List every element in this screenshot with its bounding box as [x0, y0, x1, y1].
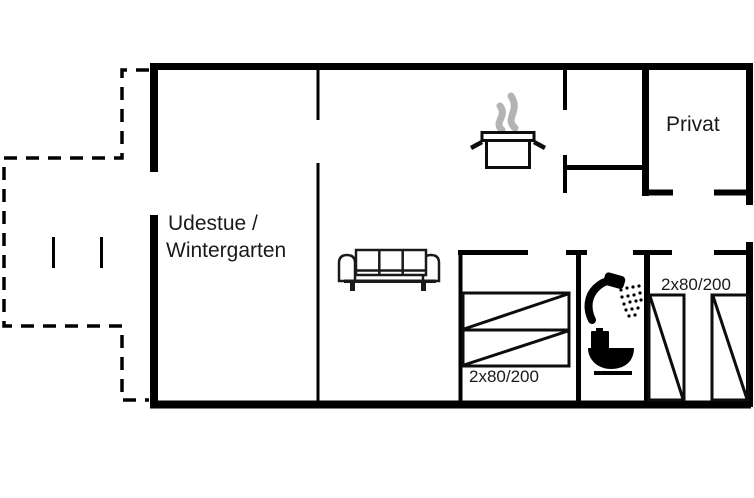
terrace-outline [4, 70, 149, 400]
floor-plan-drawing: Udestue / Wintergarten Privat 2x80/200 2… [0, 0, 754, 498]
private-room-label: Privat [666, 113, 720, 136]
single-bed-icon-left [649, 295, 684, 400]
twin-bed-size-label: 2x80/200 [661, 275, 731, 294]
shower-spray-dots [619, 284, 642, 317]
double-bed-size-label: 2x80/200 [469, 367, 539, 386]
winter-garden-label-line1: Udestue / [168, 212, 258, 235]
single-bed-icon-right [712, 295, 748, 400]
winter-garden-label-line2: Wintergarten [166, 239, 286, 262]
terrace-step-marks [54, 237, 102, 268]
cooking-pot-icon [471, 133, 545, 168]
floor-plan: Udestue / Wintergarten Privat 2x80/200 2… [0, 0, 754, 498]
outer-walls [150, 63, 751, 407]
sofa-icon [339, 250, 439, 291]
double-bed-icon [463, 293, 569, 366]
steam-icon [499, 96, 515, 130]
toilet-icon [588, 328, 634, 375]
shower-icon [589, 271, 643, 320]
